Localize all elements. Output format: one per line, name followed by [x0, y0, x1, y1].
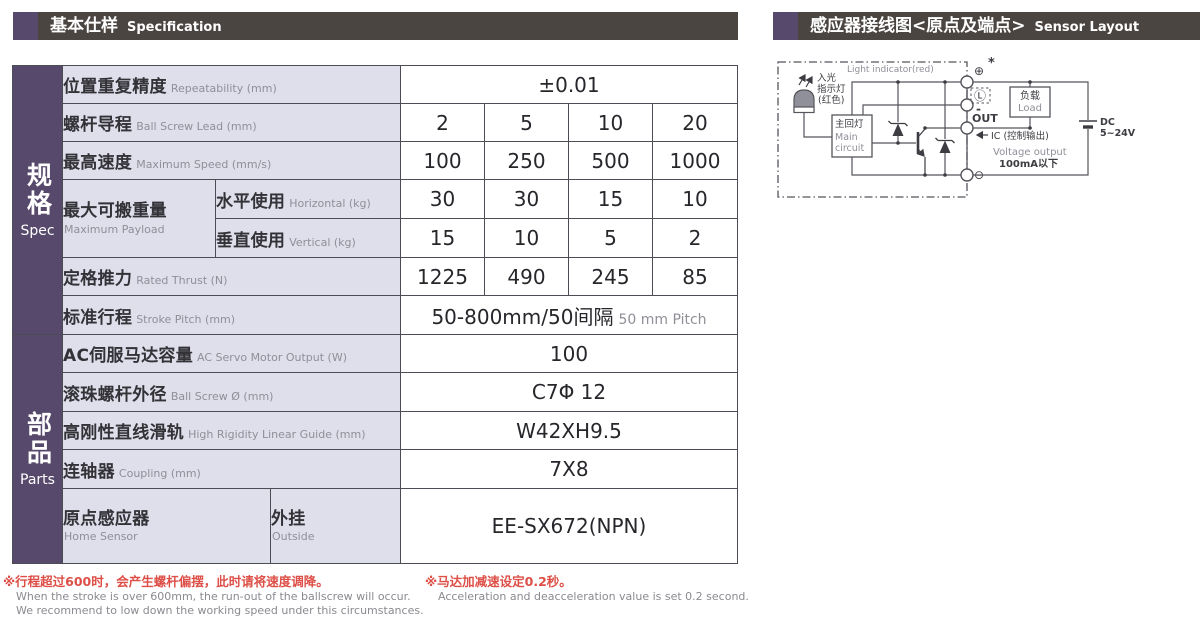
- dc-range-label: 5~24V: [1100, 128, 1136, 139]
- label-zh: 滚珠螺杆外径: [63, 385, 167, 405]
- label-zh: 定格推力: [63, 269, 132, 289]
- table-row: 高刚性直线滑轨High Rigidity Linear Guide (mm) W…: [13, 412, 738, 450]
- value-horizontal-1: 30: [401, 180, 485, 219]
- main-circuit-en: circuit: [835, 143, 864, 154]
- footnote-en: We recommend to low down the working spe…: [16, 604, 424, 618]
- out-terminal-label: OUT: [972, 112, 998, 125]
- value-horizontal-4: 10: [653, 180, 738, 219]
- label-en: Maximum Payload: [64, 223, 215, 236]
- label-en: Maximum Speed (mm/s): [136, 158, 271, 171]
- value-lead-3: 10: [569, 104, 653, 142]
- value-lead-2: 5: [485, 104, 569, 142]
- value-servo: 100: [401, 335, 738, 373]
- main-circuit-en: Main: [835, 132, 858, 143]
- light-zh-label: 指示灯: [817, 83, 846, 95]
- label-en: Repeatability (mm): [171, 82, 277, 95]
- label-zh: 连轴器: [63, 462, 115, 482]
- stroke-value: 50-800mm/50间隔: [431, 305, 613, 329]
- table-row: 定格推力Rated Thrust (N) 1225 490 245 85: [13, 258, 738, 296]
- label-coupling: 连轴器Coupling (mm): [63, 450, 401, 489]
- table-row: 连轴器Coupling (mm) 7X8: [13, 450, 738, 489]
- label-max-speed: 最高速度Maximum Speed (mm/s): [63, 142, 401, 180]
- label-zh: 垂直使用: [216, 231, 285, 251]
- header-accent-square: [13, 12, 38, 40]
- zener-diode-icon: [936, 138, 955, 153]
- label-zh: AC伺服马达容量: [63, 346, 193, 366]
- label-zh: 原点感应器: [63, 509, 270, 530]
- section-title-zh: 感应器接线图<原点及端点>: [810, 12, 1026, 40]
- light-zh-label: 入光: [817, 72, 837, 84]
- value-horizontal-3: 15: [569, 180, 653, 219]
- value-stroke: 50-800mm/50间隔50 mm Pitch: [401, 296, 738, 335]
- label-en: Vertical (kg): [289, 236, 356, 249]
- label-en: Horizontal (kg): [289, 197, 371, 210]
- ic-label: IC (控制输出): [991, 130, 1049, 142]
- value-thrust-2: 490: [485, 258, 569, 296]
- label-zh: 高刚性直线滑轨: [63, 423, 184, 443]
- value-repeatability: ±0.01: [401, 66, 738, 104]
- table-row: 最高速度Maximum Speed (mm/s) 100 250 500 100…: [13, 142, 738, 180]
- zener-diode-icon: [889, 121, 908, 136]
- light-in-arrows: [799, 75, 812, 87]
- label-zh: 最高速度: [63, 153, 132, 173]
- load-zh: 负载: [1020, 89, 1040, 102]
- header-accent-square: [773, 12, 798, 40]
- value-speed-3: 500: [569, 142, 653, 180]
- sensor-section-header: 感应器接线图<原点及端点> Sensor Layout: [773, 12, 1200, 40]
- stroke-value-note: 50 mm Pitch: [618, 312, 706, 328]
- label-en: Coupling (mm): [119, 467, 201, 480]
- label-en: High Rigidity Linear Guide (mm): [188, 428, 365, 441]
- light-indicator-label: Light indicator(red): [847, 65, 934, 75]
- table-row: 规格 Spec 位置重复精度Repeatability (mm) ±0.01: [13, 66, 738, 104]
- sensor-wiring-diagram: Light indicator(red) 入光 指示灯 (红色) 主回灯 Mai…: [775, 48, 1195, 213]
- value-home-sensor: EE-SX672(NPN): [401, 489, 738, 564]
- label-stroke-pitch: 标准行程Stroke Pitch (mm): [63, 296, 401, 335]
- label-zh: 最大可搬重量: [63, 201, 215, 222]
- value-lead-1: 2: [401, 104, 485, 142]
- footnote-acceleration: ※马达加减速设定0.2秒。 Acceleration and deacceler…: [425, 574, 749, 604]
- value-vertical-1: 15: [401, 219, 485, 258]
- label-zh: 螺杆导程: [63, 115, 132, 135]
- section-title-zh: 基本仕样: [50, 12, 118, 40]
- section-title-en: Sensor Layout: [1035, 20, 1140, 35]
- label-repeatability: 位置重复精度Repeatability (mm): [63, 66, 401, 104]
- dc-label: DC: [1100, 117, 1115, 128]
- table-row: 螺杆导程Ball Screw Lead (mm) 2 5 10 20: [13, 104, 738, 142]
- label-en: AC Servo Motor Output (W): [197, 351, 347, 364]
- value-horizontal-2: 30: [485, 180, 569, 219]
- value-screw-od: C7Φ 12: [401, 373, 738, 412]
- value-coupling: 7X8: [401, 450, 738, 489]
- label-servo-output: AC伺服马达容量AC Servo Motor Output (W): [63, 335, 401, 373]
- value-thrust-3: 245: [569, 258, 653, 296]
- sidebar-spec-en: Spec: [13, 223, 62, 239]
- sidebar-spec: 规格 Spec: [13, 66, 63, 335]
- footnote-en: Acceleration and deacceleration value is…: [438, 590, 749, 604]
- value-vertical-2: 10: [485, 219, 569, 258]
- label-en: Ball Screw Lead (mm): [136, 120, 256, 133]
- value-vertical-4: 2: [653, 219, 738, 258]
- light-terminal-label: Ⓛ: [974, 89, 986, 103]
- footnote-zh: ※行程超过600时，会产生螺杆偏摆，此时请将速度调降。: [3, 574, 424, 590]
- light-zh-label: (红色): [818, 94, 844, 106]
- value-speed-1: 100: [401, 142, 485, 180]
- table-row: 标准行程Stroke Pitch (mm) 50-800mm/50间隔50 mm…: [13, 296, 738, 335]
- sidebar-parts: 部品 Parts: [13, 335, 63, 564]
- label-horizontal: 水平使用Horizontal (kg): [216, 180, 401, 219]
- current-limit-label: 100mA以下: [999, 158, 1058, 170]
- table-row: 部品 Parts AC伺服马达容量AC Servo Motor Output (…: [13, 335, 738, 373]
- sidebar-parts-en: Parts: [13, 472, 62, 488]
- table-row: 最大可搬重量 Maximum Payload 水平使用Horizontal (k…: [13, 180, 738, 219]
- label-en: Home Sensor: [64, 530, 270, 543]
- value-lead-4: 20: [653, 104, 738, 142]
- label-linear-guide: 高刚性直线滑轨High Rigidity Linear Guide (mm): [63, 412, 401, 450]
- value-guide: W42XH9.5: [401, 412, 738, 450]
- main-circuit-zh: 主回灯: [835, 118, 864, 130]
- section-title-en: Specification: [127, 20, 222, 35]
- label-en: Ball Screw Ø (mm): [171, 390, 274, 403]
- label-ball-screw-lead: 螺杆导程Ball Screw Lead (mm): [63, 104, 401, 142]
- label-en: Outside: [272, 530, 400, 543]
- label-max-payload: 最大可搬重量 Maximum Payload: [63, 180, 216, 258]
- transistor-icon: [918, 128, 925, 175]
- specification-table: 规格 Spec 位置重复精度Repeatability (mm) ±0.01 螺…: [12, 65, 738, 564]
- header-bar: 基本仕样 Specification: [38, 12, 738, 40]
- footnote-zh: ※马达加减速设定0.2秒。: [425, 574, 749, 590]
- label-vertical: 垂直使用Vertical (kg): [216, 219, 401, 258]
- label-en: Stroke Pitch (mm): [136, 313, 235, 326]
- load-en: Load: [1018, 103, 1042, 114]
- spec-section-header: 基本仕样 Specification: [13, 12, 738, 40]
- catalog-spec-page: 基本仕样 Specification 感应器接线图<原点及端点> Sensor …: [0, 0, 1200, 632]
- value-vertical-3: 5: [569, 219, 653, 258]
- value-speed-2: 250: [485, 142, 569, 180]
- plus-terminal-label: ⊕: [974, 64, 984, 78]
- value-speed-4: 1000: [653, 142, 738, 180]
- footnote-en: When the stroke is over 600mm, the run-o…: [16, 590, 424, 604]
- sidebar-spec-zh: 规格: [20, 162, 56, 218]
- label-zh: 位置重复精度: [63, 77, 167, 97]
- label-screw-od: 滚珠螺杆外径Ball Screw Ø (mm): [63, 373, 401, 412]
- value-thrust-4: 85: [653, 258, 738, 296]
- table-row: 原点感应器 Home Sensor 外挂 Outside EE-SX672(NP…: [13, 489, 738, 564]
- led-indicator-icon: [794, 90, 814, 113]
- label-rated-thrust: 定格推力Rated Thrust (N): [63, 258, 401, 296]
- table-row: 滚珠螺杆外径Ball Screw Ø (mm) C7Φ 12: [13, 373, 738, 412]
- asterisk-mark: *: [988, 56, 995, 71]
- voltage-output-label: Voltage output: [993, 147, 1067, 158]
- value-thrust-1: 1225: [401, 258, 485, 296]
- label-en: Rated Thrust (N): [136, 274, 227, 287]
- footnote-stroke-warning: ※行程超过600时，会产生螺杆偏摆，此时请将速度调降。 When the str…: [3, 574, 424, 618]
- label-home-sensor-mount: 外挂 Outside: [271, 489, 401, 564]
- battery-icon: [1079, 121, 1097, 127]
- header-bar: 感应器接线图<原点及端点> Sensor Layout: [798, 12, 1200, 40]
- sidebar-parts-zh: 部品: [20, 411, 56, 467]
- label-home-sensor: 原点感应器 Home Sensor: [63, 489, 271, 564]
- label-zh: 标准行程: [63, 308, 132, 328]
- label-zh: 外挂: [271, 509, 400, 530]
- label-zh: 水平使用: [216, 192, 285, 212]
